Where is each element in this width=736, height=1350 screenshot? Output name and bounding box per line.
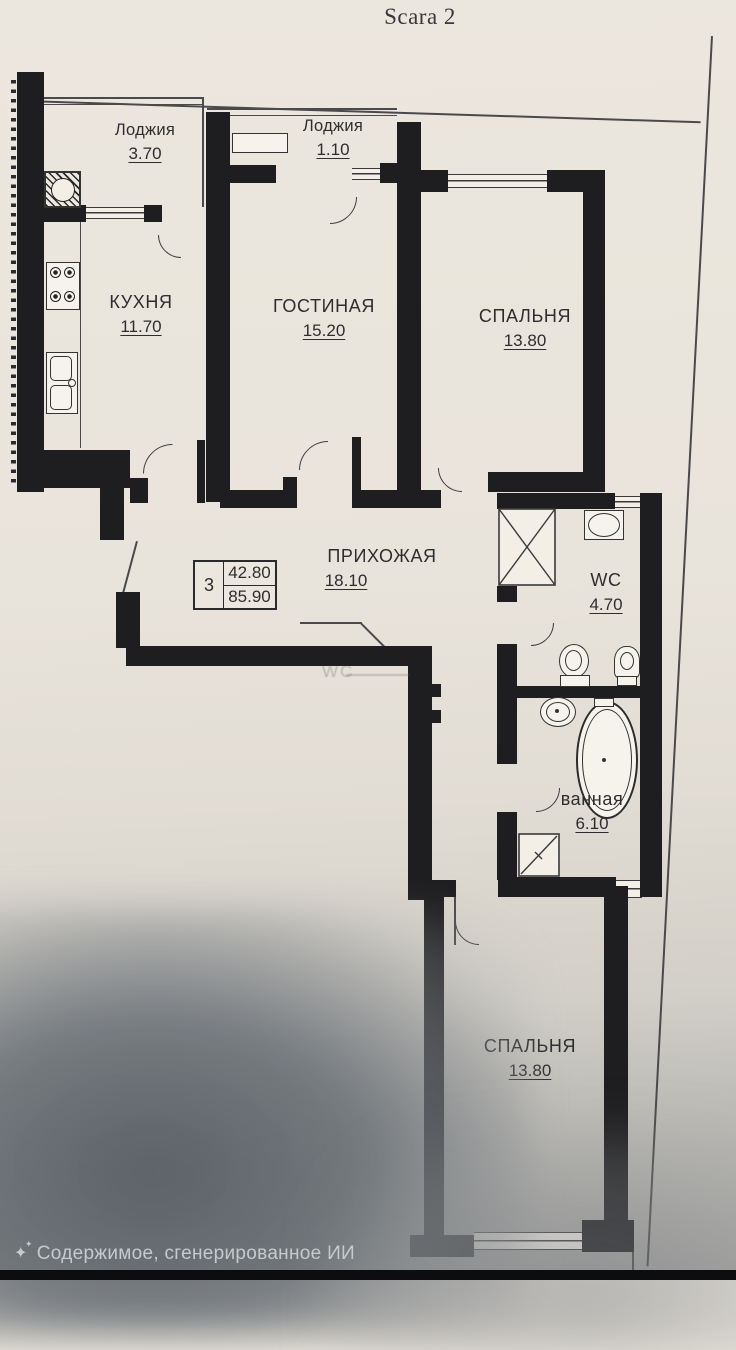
stove-icon xyxy=(46,262,80,310)
bathtub-faucet-icon xyxy=(594,698,614,707)
drawing-line xyxy=(122,541,138,594)
wall-segment xyxy=(144,205,162,222)
rooms-count: 3 xyxy=(195,562,224,608)
washer-icon xyxy=(44,171,81,208)
wall-segment xyxy=(100,488,124,540)
drawing-line xyxy=(44,104,202,105)
wall-segment xyxy=(352,437,361,508)
wall-segment xyxy=(130,478,148,503)
wall-segment xyxy=(206,112,230,502)
wall-segment xyxy=(497,812,517,880)
drawing-line xyxy=(202,99,204,207)
apartment-info-box: 3 42.80 85.90 xyxy=(193,560,277,610)
window-icon xyxy=(615,496,643,508)
wall-segment xyxy=(497,586,517,602)
wall-segment xyxy=(583,180,605,492)
wall-segment xyxy=(510,686,640,698)
room-label-hallway: ПРИХОЖАЯ 18.10 xyxy=(325,546,440,591)
wall-segment xyxy=(197,440,205,503)
wall-hatch-ticks xyxy=(11,80,16,488)
erased-label-artifact: WC xyxy=(322,662,354,682)
wall-segment xyxy=(497,644,517,764)
wall-segment xyxy=(432,710,441,723)
room-label-wc: WC4.70 xyxy=(589,570,622,615)
wall-segment xyxy=(116,592,140,648)
drawing-line xyxy=(207,108,397,110)
drawing-line xyxy=(44,97,204,99)
room-label-bedroom-top: СПАЛЬНЯ13.80 xyxy=(479,306,571,351)
wall-segment xyxy=(361,490,441,508)
drawing-line xyxy=(300,622,362,624)
planter-box-icon xyxy=(232,133,288,153)
window-icon xyxy=(474,1232,582,1250)
wall-segment xyxy=(126,646,426,666)
toilet-icon xyxy=(559,644,589,678)
living-area: 42.80 xyxy=(224,562,275,586)
total-area: 85.90 xyxy=(224,586,275,609)
wall-segment xyxy=(547,170,605,192)
floor-plan: Лоджия3.70 Лоджия1.10 КУХНЯ11.70 ГОСТИНА… xyxy=(0,0,736,1280)
shaft-diagonal-icon xyxy=(518,833,560,877)
wall-segment xyxy=(17,72,44,492)
wall-segment xyxy=(424,897,444,1235)
room-label-loggia-left: Лоджия3.70 xyxy=(115,121,175,164)
shaft-hatch-icon xyxy=(498,508,556,586)
wall-segment xyxy=(432,684,441,697)
bottom-letterbox-bar xyxy=(0,1270,736,1280)
bidet-base-icon xyxy=(617,676,637,686)
window-icon xyxy=(447,174,547,188)
wall-segment xyxy=(283,477,297,508)
room-label-kitchen: КУХНЯ11.70 xyxy=(109,292,172,337)
wall-segment xyxy=(228,165,276,183)
wall-segment xyxy=(497,493,615,509)
bath-sink-icon xyxy=(540,697,576,727)
window-icon xyxy=(352,168,380,180)
erased-label-strike xyxy=(346,674,410,676)
window-icon xyxy=(86,207,144,219)
toilet-tank-icon xyxy=(560,675,590,687)
wall-segment xyxy=(380,163,410,183)
drawing-line xyxy=(207,115,397,116)
room-label-bathroom: ванная6.10 xyxy=(561,789,624,834)
drawing-line xyxy=(632,1250,634,1272)
kitchen-sink-icon xyxy=(46,352,78,414)
wall-segment xyxy=(604,886,628,1226)
wall-segment xyxy=(410,1235,474,1257)
wall-segment xyxy=(498,877,616,897)
sparkle-icon: ✦✦ xyxy=(14,1246,28,1262)
drawing-line xyxy=(80,222,81,448)
wall-segment xyxy=(640,493,662,897)
ai-watermark: ✦✦ Содержимое, сгенерированное ИИ xyxy=(14,1243,355,1265)
wall-segment xyxy=(408,646,432,900)
ai-watermark-text: Содержимое, сгенерированное ИИ xyxy=(37,1243,355,1265)
room-label-living-room: ГОСТИНАЯ15.20 xyxy=(273,296,375,341)
wall-segment xyxy=(420,170,448,192)
room-label-loggia-top: Лоджия1.10 xyxy=(303,117,363,160)
drawing-line xyxy=(454,895,456,945)
room-label-bedroom-bottom: СПАЛЬНЯ13.80 xyxy=(484,1036,576,1081)
bidet-icon xyxy=(614,646,640,678)
wc-sink-icon xyxy=(584,510,624,540)
